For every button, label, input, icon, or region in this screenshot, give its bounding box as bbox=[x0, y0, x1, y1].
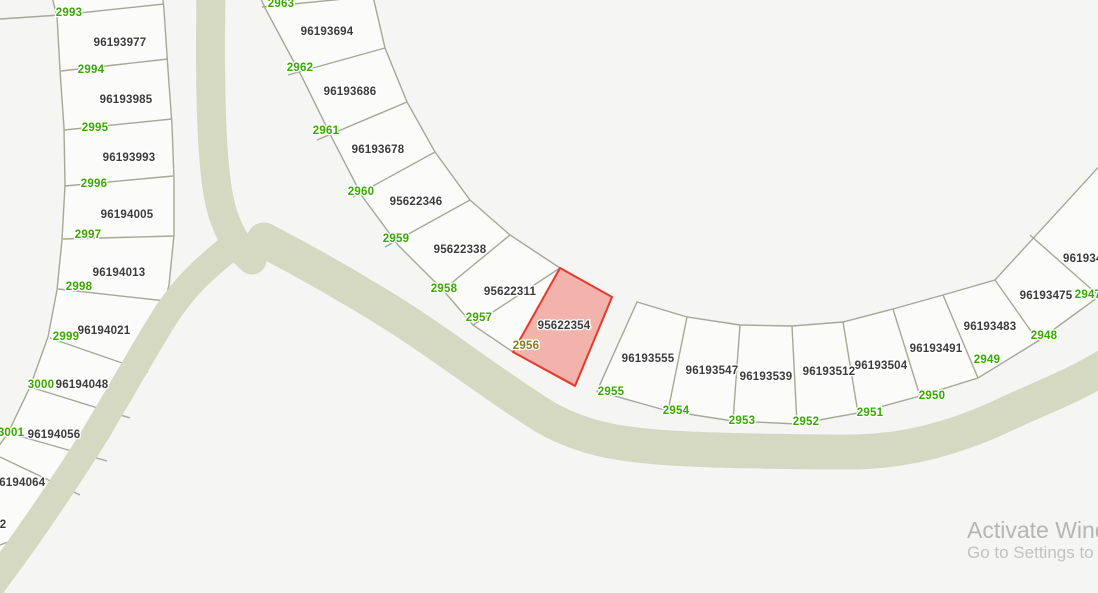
parcel-number-label: 96193504 bbox=[855, 360, 908, 372]
lot-number-label: 2962 bbox=[287, 62, 313, 74]
parcel-number-label: 95622338 bbox=[434, 244, 487, 256]
lot-number-label: 2951 bbox=[857, 407, 884, 419]
parcel-number-label: 96194005 bbox=[101, 209, 154, 221]
lot-number-label: 2947 bbox=[1075, 289, 1098, 301]
parcel-number-label: 96194013 bbox=[93, 267, 146, 279]
lot-number-label: 2997 bbox=[75, 229, 101, 241]
lot-number-label: 2961 bbox=[313, 125, 340, 137]
parcel-number-label: 961934 bbox=[1063, 253, 1098, 265]
map-viewport: 9619397796193985961939939619400596194013… bbox=[0, 0, 1098, 593]
parcel-number-label: 96194048 bbox=[56, 379, 109, 391]
parcel-number-label: 96194021 bbox=[78, 325, 131, 337]
parcel-number-label: 96193985 bbox=[100, 94, 153, 106]
parcel-number-label: 96193512 bbox=[803, 366, 856, 378]
lot-number-label: 2963 bbox=[268, 0, 294, 10]
lot-number-label: 2996 bbox=[81, 178, 107, 190]
parcel-number-label: 96193475 bbox=[1020, 290, 1073, 302]
parcel-number-label: 96193678 bbox=[352, 144, 405, 156]
lot-number-label: 2956 bbox=[513, 340, 539, 352]
parcel-number-label: 95622311 bbox=[484, 286, 537, 298]
parcel-number-label: 96193539 bbox=[740, 371, 793, 383]
parcel-number-label: 96193686 bbox=[324, 86, 377, 98]
map-canvas[interactable]: 9619397796193985961939939619400596194013… bbox=[0, 0, 1098, 593]
parcel-number-label: 96193491 bbox=[910, 343, 963, 355]
lot-number-label: 2994 bbox=[78, 64, 105, 76]
lot-number-label: 2993 bbox=[56, 7, 82, 19]
road-north bbox=[211, 0, 252, 260]
lot-number-label: 2995 bbox=[82, 122, 109, 134]
parcel-number-label: 96193555 bbox=[622, 353, 675, 365]
parcel-number-label: 95622354 bbox=[538, 320, 591, 332]
parcel-number-label: 96193977 bbox=[94, 37, 147, 49]
parcel-block-west bbox=[0, 0, 174, 593]
lot-number-label: 2957 bbox=[466, 312, 492, 324]
lot-number-label: 2949 bbox=[974, 354, 1000, 366]
lot-number-label: 3001 bbox=[0, 427, 25, 439]
lot-number-label: 2999 bbox=[53, 331, 79, 343]
parcel-number-label: 96193993 bbox=[103, 152, 156, 164]
lot-number-label: 2954 bbox=[663, 405, 690, 417]
lot-number-label: 2958 bbox=[431, 283, 458, 295]
parcel-number-label: 95622346 bbox=[390, 196, 443, 208]
lot-number-label: 2955 bbox=[598, 386, 625, 398]
lot-number-label: 3000 bbox=[28, 379, 54, 391]
lot-number-label: 2948 bbox=[1031, 330, 1058, 342]
parcel-number-label: 96193483 bbox=[964, 321, 1017, 333]
parcel-number-label: 96194056 bbox=[28, 429, 81, 441]
lot-number-label: 2950 bbox=[919, 390, 945, 402]
parcel-number-label: 96193694 bbox=[301, 26, 354, 38]
parcel-number-label: 96193547 bbox=[686, 365, 739, 377]
lot-number-label: 2953 bbox=[729, 415, 755, 427]
parcel-number-label: 96194064 bbox=[0, 477, 46, 489]
lot-number-label: 2960 bbox=[348, 186, 374, 198]
lot-number-label: 2998 bbox=[66, 281, 93, 293]
lot-number-label: 2952 bbox=[793, 416, 819, 428]
parcel-number-label: 2 bbox=[0, 519, 6, 531]
lot-number-label: 2959 bbox=[383, 233, 409, 245]
